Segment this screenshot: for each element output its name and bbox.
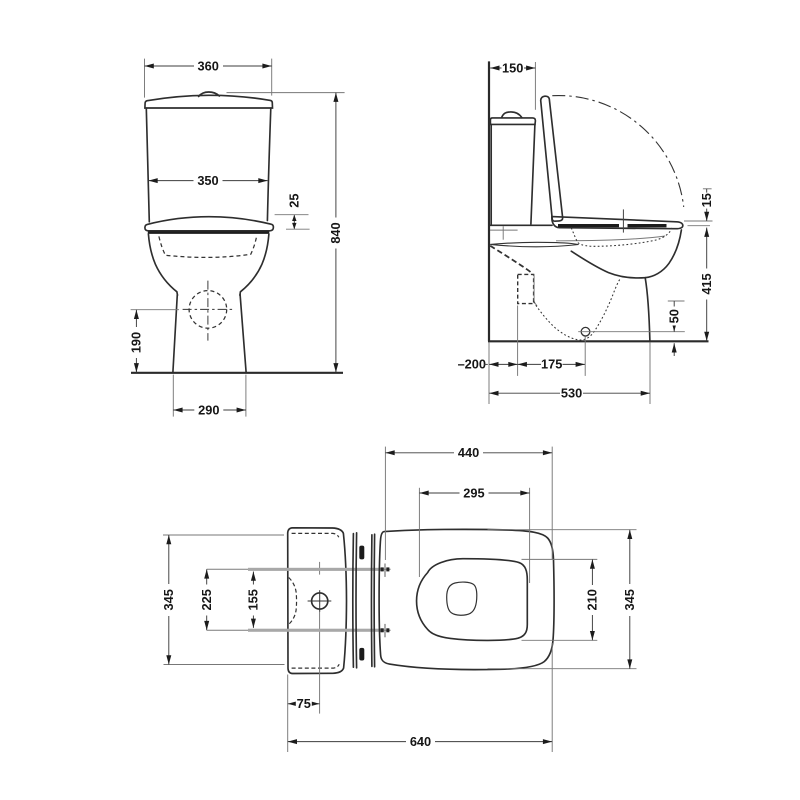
svg-text:15: 15 — [699, 193, 714, 207]
svg-text:225: 225 — [199, 589, 214, 610]
svg-text:360: 360 — [198, 58, 219, 73]
svg-text:415: 415 — [699, 273, 714, 294]
svg-text:640: 640 — [410, 734, 431, 749]
svg-text:530: 530 — [561, 386, 582, 401]
svg-text:75: 75 — [297, 696, 311, 711]
svg-text:–200: –200 — [458, 357, 486, 372]
svg-text:190: 190 — [129, 332, 144, 353]
svg-text:350: 350 — [197, 173, 218, 188]
svg-text:150: 150 — [502, 60, 523, 75]
svg-text:175: 175 — [541, 357, 562, 372]
svg-text:840: 840 — [328, 222, 343, 243]
svg-text:210: 210 — [585, 589, 600, 610]
svg-text:345: 345 — [622, 589, 637, 610]
svg-text:50: 50 — [667, 309, 682, 323]
svg-text:440: 440 — [458, 445, 479, 460]
svg-text:290: 290 — [198, 402, 219, 417]
svg-text:345: 345 — [161, 589, 176, 610]
svg-text:25: 25 — [287, 193, 302, 207]
svg-text:295: 295 — [463, 485, 484, 500]
svg-text:155: 155 — [246, 589, 261, 610]
